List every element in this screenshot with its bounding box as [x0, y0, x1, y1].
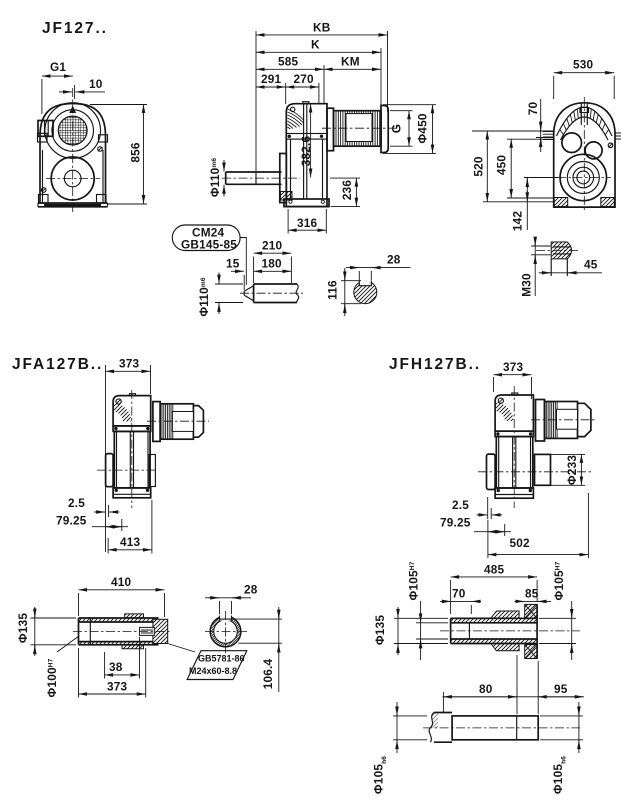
svg-text:79.25: 79.25: [56, 514, 87, 528]
svg-text:502: 502: [510, 536, 531, 550]
svg-text:Φ450: Φ450: [416, 113, 430, 143]
svg-text:2.5: 2.5: [452, 498, 469, 512]
svg-text:45: 45: [584, 258, 598, 272]
svg-text:70: 70: [526, 102, 540, 116]
svg-text:316: 316: [297, 216, 318, 230]
svg-text:270: 270: [294, 72, 315, 86]
svg-text:38: 38: [109, 660, 123, 674]
svg-text:210: 210: [262, 239, 283, 253]
svg-text:373: 373: [503, 360, 524, 374]
svg-text:28: 28: [244, 583, 258, 597]
svg-text:JF127..: JF127..: [42, 20, 108, 37]
svg-text:450: 450: [495, 155, 509, 176]
svg-text:79.25: 79.25: [440, 516, 471, 530]
svg-text:373: 373: [119, 357, 140, 371]
svg-text:85: 85: [525, 587, 539, 601]
svg-text:382.6: 382.6: [299, 136, 313, 167]
svg-text:485: 485: [484, 563, 505, 577]
svg-text:410: 410: [111, 575, 132, 589]
svg-text:585: 585: [278, 55, 299, 69]
svg-text:Φ135: Φ135: [373, 615, 387, 645]
svg-text:JFA127B..: JFA127B..: [12, 356, 103, 373]
svg-text:15: 15: [226, 257, 240, 271]
svg-text:142: 142: [511, 211, 525, 232]
svg-text:2.5: 2.5: [68, 496, 85, 510]
svg-text:413: 413: [120, 535, 141, 549]
svg-text:373: 373: [107, 680, 128, 694]
svg-text:80: 80: [479, 682, 493, 696]
svg-text:K: K: [311, 38, 320, 52]
svg-text:856: 856: [129, 142, 143, 163]
svg-text:236: 236: [340, 180, 354, 201]
svg-text:GB5781-86: GB5781-86: [198, 654, 245, 664]
svg-text:530: 530: [573, 58, 594, 72]
svg-text:M24x60-8.8: M24x60-8.8: [189, 666, 237, 676]
svg-text:70: 70: [452, 587, 466, 601]
svg-text:180: 180: [262, 257, 283, 271]
svg-text:10: 10: [89, 77, 103, 91]
svg-text:KM: KM: [341, 55, 360, 69]
svg-text:Φ233: Φ233: [565, 455, 579, 485]
svg-text:G1: G1: [50, 60, 66, 74]
svg-text:106.4: 106.4: [261, 659, 275, 690]
svg-text:G: G: [390, 124, 404, 133]
svg-text:Φ135: Φ135: [16, 613, 30, 643]
svg-text:KB: KB: [313, 21, 330, 35]
svg-text:520: 520: [472, 156, 486, 177]
svg-text:291: 291: [261, 72, 282, 86]
svg-text:GB145-85: GB145-85: [181, 238, 237, 252]
svg-text:95: 95: [554, 682, 568, 696]
svg-text:28: 28: [387, 253, 401, 267]
svg-text:116: 116: [326, 280, 340, 300]
svg-text:JFH127B..: JFH127B..: [389, 356, 481, 373]
svg-text:M30: M30: [520, 273, 534, 297]
